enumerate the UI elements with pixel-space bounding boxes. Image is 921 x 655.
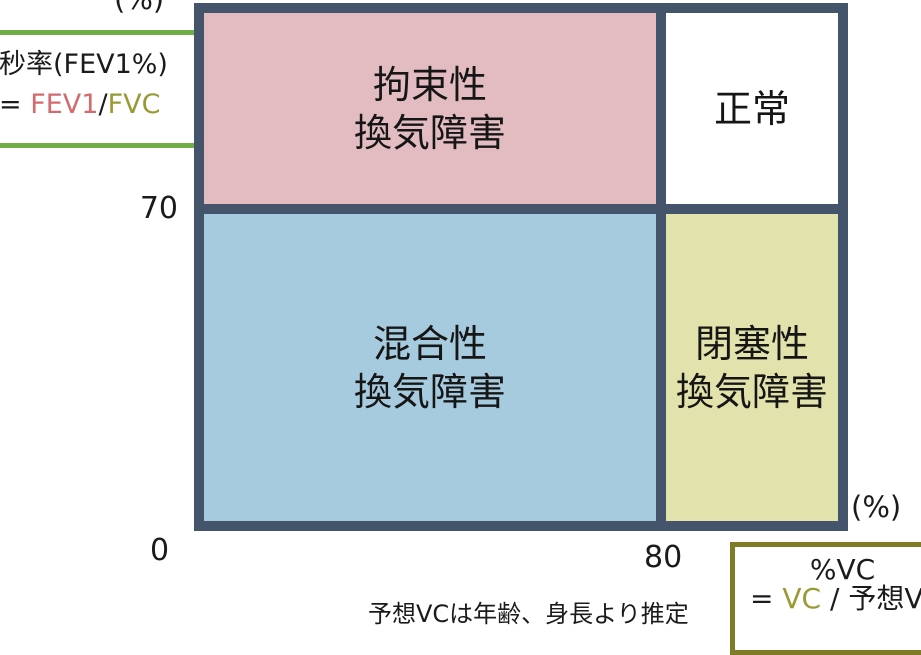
y-axis-tick-70: 70 — [120, 191, 178, 226]
x-axis-unit-label: (%) — [851, 490, 901, 524]
quadrant-chart: 拘束性 換気障害 正常 混合性 換気障害 閉塞性 換気障害 — [194, 3, 848, 531]
x-axis-tick-0: 0 — [150, 533, 169, 568]
y-axis-unit-label: (%) — [114, 0, 164, 16]
fev1-formula-numerator: FEV1 — [30, 89, 98, 120]
quadrant-mixed: 混合性 換気障害 — [204, 214, 656, 521]
vc-formula-numerator: VC — [782, 582, 821, 615]
fev1-formula: = FEV1/FVC — [0, 85, 197, 125]
fev1-formula-denominator: FVC — [108, 89, 161, 120]
fev1-formula-eq: = — [0, 89, 30, 120]
vc-box-title: %VC — [750, 555, 921, 584]
quadrant-obstructive: 閉塞性 換気障害 — [666, 214, 838, 521]
vc-formula: = VC / 予想VC — [750, 584, 921, 613]
vc-formula-rest: / 予想VC — [821, 582, 921, 615]
x-axis-tick-80: 80 — [644, 540, 682, 575]
vc-formula-box: %VC = VC / 予想VC — [730, 542, 921, 655]
quadrant-normal: 正常 — [666, 13, 838, 204]
fev1-formula-slash: / — [98, 89, 107, 120]
fev1-formula-box: 秒率(FEV1%) = FEV1/FVC — [0, 30, 202, 148]
predicted-vc-footnote: 予想VCは年齢、身長より推定 — [368, 594, 689, 629]
vc-formula-eq: = — [750, 582, 782, 615]
quadrant-restrictive: 拘束性 換気障害 — [204, 13, 656, 204]
fev1-box-title: 秒率(FEV1%) — [0, 45, 197, 85]
